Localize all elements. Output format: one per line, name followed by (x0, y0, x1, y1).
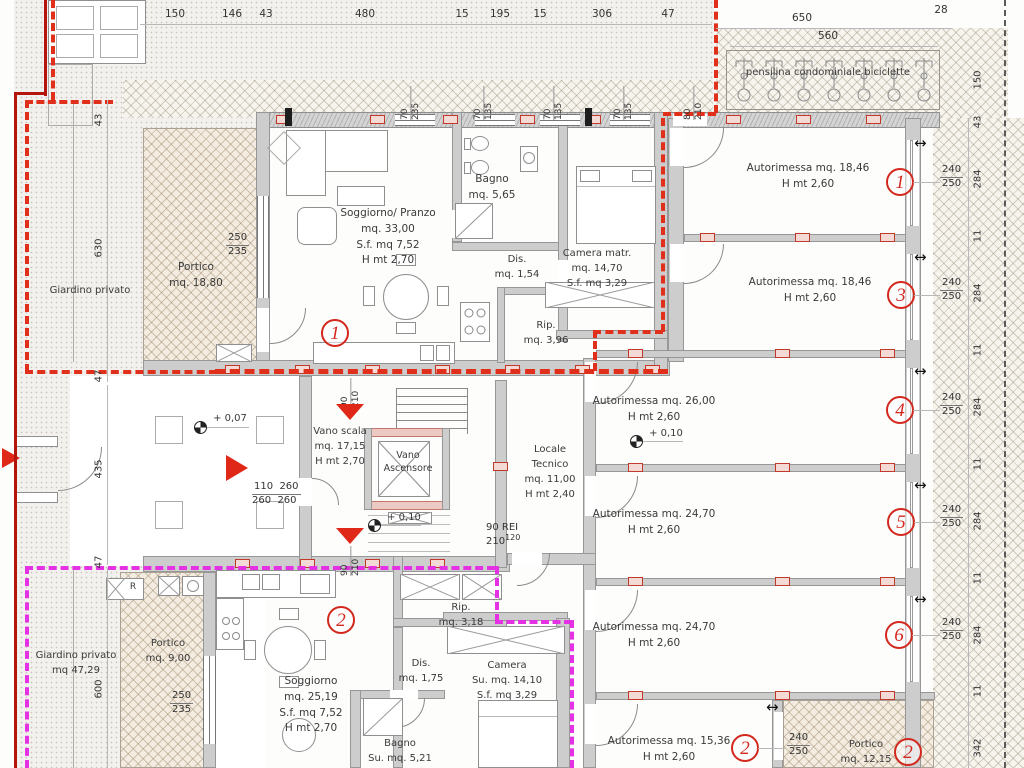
garage4-label: Autorimessa mq. 26,00 (593, 394, 716, 410)
garage-door-2 (774, 712, 783, 760)
garage1-h: H mt 2,60 (747, 177, 870, 193)
door-post (585, 108, 592, 126)
boiler-cross-icon (106, 578, 125, 600)
dim-label: 43 (973, 116, 984, 129)
chair (244, 640, 256, 660)
boiler-label: R (130, 582, 136, 594)
unit2-boundary (495, 566, 499, 622)
gate-top (14, 436, 58, 447)
entrance-arrow-icon (336, 528, 364, 544)
sink-basin (262, 574, 280, 590)
leader-line (913, 410, 940, 411)
dim-label: 47 (661, 8, 674, 22)
portico1-box-cross-icon (216, 344, 252, 362)
dim-label: 150 (165, 8, 185, 22)
level-line (381, 525, 421, 526)
cabinet-cell (56, 6, 94, 30)
door-dim-pair: 80210 (683, 86, 705, 120)
garage1-door-dim: 240250 (940, 164, 963, 190)
boundary-solid (14, 92, 47, 95)
dim-label: 43 (94, 114, 105, 127)
entry-dims: 110 260260 260 (252, 456, 301, 532)
soggiorno2-label: Soggiorno (279, 674, 342, 690)
soggiorno2-sf: S.f. mq 7,52 (279, 706, 342, 722)
vano-scala-label: Vano scala (313, 424, 367, 439)
pillar-mark (775, 463, 790, 472)
dim-label: 560 (818, 30, 838, 44)
garage5-label: Autorimessa mq. 24,70 (593, 507, 716, 523)
dim-label: 28 (934, 4, 947, 18)
garage1-label: Autorimessa mq. 18,46 (747, 161, 870, 177)
garage6-h: H mt 2,60 (593, 636, 716, 652)
pillar-mark (880, 349, 895, 358)
leader-line (912, 635, 940, 636)
dim-label: 650 (792, 12, 812, 26)
portico-garage2-label: Portico (840, 737, 891, 752)
dim-line-650 (716, 28, 952, 29)
rip2-label: Rip. (439, 600, 484, 615)
pillar-mark (880, 463, 895, 472)
window-dim-pair: 70135 (543, 86, 565, 120)
dis1-label: Dis. (495, 252, 540, 267)
bed-line (479, 716, 557, 717)
wardrobe-cross-icon (447, 626, 565, 654)
pillar-mark (628, 691, 643, 700)
unit2-badge: 2 (327, 606, 355, 634)
portico1-label: Portico (169, 260, 223, 276)
door-garage2-side (585, 704, 596, 744)
dim-label: 11 (973, 458, 984, 471)
entrance-arrow-icon (336, 404, 364, 420)
pillar (155, 416, 183, 444)
garage1-badge: 1 (886, 168, 914, 196)
dim-label: 600 (94, 679, 105, 698)
pillow (580, 170, 600, 182)
pillar (155, 501, 183, 529)
pillar-mark (493, 462, 508, 471)
unit1-boundary (25, 100, 113, 104)
dim-label: 284 (973, 283, 984, 302)
dim-label: 11 (973, 344, 984, 357)
wall-rip1-left (497, 287, 505, 363)
pillar-mark (628, 349, 643, 358)
chair (314, 640, 326, 660)
window-apt2-left (203, 656, 216, 744)
soggiorno1-sf: S.f. mq 7,52 (340, 238, 435, 254)
dim-label: 630 (94, 238, 105, 257)
chair (279, 608, 299, 620)
unit2-boundary (570, 620, 574, 768)
cabinet-cell (100, 6, 138, 30)
pillar-mark (370, 115, 385, 124)
dining-table (264, 626, 312, 674)
dim-label: 47 (94, 556, 105, 569)
rip1-area: mq. 3,96 (524, 333, 569, 348)
level-marker-icon (194, 421, 207, 434)
bicycle-icons (730, 52, 934, 108)
door-stair-entry (299, 478, 312, 506)
dryer-drum (187, 580, 199, 592)
camera2-sf: S.f. mq 3,29 (472, 688, 542, 703)
dining-table (383, 274, 429, 320)
stove-burners-icon (218, 612, 244, 646)
wc (471, 136, 489, 151)
pillar-mark (443, 115, 458, 124)
garage2-h: H mt 2,60 (608, 750, 731, 766)
level-marker-icon (630, 435, 643, 448)
sink-basin (242, 574, 260, 590)
door-garage1 (670, 128, 684, 166)
unit1-boundary (25, 370, 217, 374)
dim-line-left (107, 385, 108, 565)
pillar-mark (726, 115, 741, 124)
bagno2-area: Su. mq. 5,21 (368, 751, 432, 766)
leader-line (758, 748, 785, 749)
garage2-badge: 2 (731, 734, 759, 762)
level-marker-icon (368, 519, 381, 532)
bagno1-area: mq. 5,65 (469, 188, 516, 204)
dim-label: 15 (533, 8, 546, 22)
dis1-area: mq. 1,54 (495, 267, 540, 282)
dim-label: 146 (222, 8, 242, 22)
stair-door-dim: 90210 (340, 546, 362, 576)
pillar-mark (796, 115, 811, 124)
ascensore-label2: Ascensore (384, 463, 433, 476)
portico-garage2-badge: 2 (894, 738, 922, 766)
unit2-boundary (495, 620, 572, 624)
garage2-door-dim: 240250 (787, 732, 810, 758)
camera2-label: Camera (472, 658, 542, 673)
window-apt1-left (257, 196, 269, 298)
pillar-mark (628, 577, 643, 586)
garage4-h: H mt 2,60 (593, 410, 716, 426)
garden2-area: mq 47,29 (36, 663, 117, 678)
chair (363, 286, 375, 306)
washer-cross-icon (158, 576, 180, 596)
locale-tecnico-h: H mt 2,40 (524, 487, 575, 502)
level-010-garage: + 0,10 (649, 427, 683, 440)
pillar-mark (880, 233, 895, 242)
chair (437, 286, 449, 306)
rei-door-label: 90 REI 210120 (486, 522, 520, 547)
unit2-boundary (25, 566, 29, 768)
garage3-door-dim: 240250 (940, 277, 963, 303)
double-arrow-icon: ↔ (914, 250, 927, 265)
pillar-mark (520, 115, 535, 124)
window-dim-pair: 70235 (400, 86, 422, 120)
soggiorno1-area: mq. 33,00 (340, 222, 435, 238)
stove-burners-icon (460, 302, 490, 342)
camera1-area: mq. 14,70 (563, 261, 632, 276)
unit1-badge: 1 (321, 319, 349, 347)
chair (396, 322, 416, 334)
sink-basin (420, 345, 434, 361)
wall-bagno1-bottom (452, 242, 568, 251)
dis2-area: mq. 1,75 (399, 671, 444, 686)
dim-line-560 (730, 46, 938, 47)
wc-tank (464, 138, 471, 150)
garage6-door-dim: 240250 (940, 617, 963, 643)
door-apt1-portico (257, 308, 269, 352)
dim-label: 284 (973, 625, 984, 644)
double-arrow-icon: ↔ (914, 136, 927, 151)
unit1-boundary (593, 330, 663, 334)
dim-label: 284 (973, 169, 984, 188)
floor-plan: 150 146 43 480 15 195 15 306 47 650 560 … (0, 0, 1024, 768)
gate-bottom (14, 492, 58, 503)
pillar-mark (775, 349, 790, 358)
leader-line (913, 182, 940, 183)
elevator-wall-top (364, 428, 450, 437)
garage4-badge: 4 (886, 396, 914, 424)
soggiorno1-label: Soggiorno/ Pranzo (340, 206, 435, 222)
garage4-door-dim: 240250 (940, 392, 963, 418)
dim-line-left (107, 100, 108, 382)
camera1-label: Camera matr. (563, 246, 632, 261)
sink-basin (436, 345, 450, 361)
door-post (285, 108, 292, 126)
elevator-wall-right (442, 428, 450, 510)
garden2-label: Giardino privato (36, 648, 117, 663)
dim-label: 47 (94, 370, 105, 383)
garage6-label: Autorimessa mq. 24,70 (593, 620, 716, 636)
portico2-paving (120, 572, 206, 768)
window-dim-pair: 70135 (473, 86, 495, 120)
door-garage3 (670, 244, 684, 282)
soggiorno1-h: H mt 2,70 (340, 253, 435, 269)
elevator-wall-bottom (364, 501, 450, 510)
unit1-boundary (593, 330, 597, 371)
dim-label: 284 (973, 397, 984, 416)
sidewalk-right (933, 118, 1024, 768)
pillar-mark (880, 691, 895, 700)
cabinet-cell (56, 34, 94, 58)
pillar-mark (775, 577, 790, 586)
wall-bagno2-left (350, 690, 361, 768)
locale-tecnico-label: Locale (524, 442, 575, 457)
garage5-h: H mt 2,60 (593, 523, 716, 539)
dim-label: 150 (973, 70, 984, 89)
garage3-label: Autorimessa mq. 18,46 (749, 275, 872, 291)
pillow (632, 170, 652, 182)
pillar-mark (880, 577, 895, 586)
soggiorno2-area: mq. 25,19 (279, 690, 342, 706)
wardrobe-cross-icon (400, 574, 460, 600)
garden1-label: Giardino privato (50, 284, 131, 297)
leader-line (914, 522, 940, 523)
property-line (1004, 0, 1006, 768)
garage5-badge: 5 (887, 508, 915, 536)
dim-label: 43 (259, 8, 272, 22)
rip2-area: mq. 3,18 (439, 615, 484, 630)
unit1-boundary (661, 118, 665, 332)
unit1-boundary (25, 100, 29, 372)
wall-stair-left (299, 376, 312, 568)
double-bed (478, 700, 558, 768)
dim-line-right (968, 118, 969, 768)
portico1-area: mq. 18,80 (169, 276, 223, 292)
garage5-door-dim: 240250 (940, 504, 963, 530)
pillar (256, 416, 284, 444)
dim-label: 342 (973, 738, 984, 757)
entrance-arrow-icon (2, 448, 20, 468)
unit1-boundary (215, 369, 668, 374)
portico2-label: Portico (146, 636, 191, 651)
unit1-boundary (714, 0, 718, 113)
dim-label: 480 (355, 8, 375, 22)
dim-line-top (140, 24, 712, 25)
bagno1-label: Bagno (469, 172, 516, 188)
double-arrow-icon: ↔ (914, 478, 927, 493)
camera2-area: Su. mq. 14,10 (472, 673, 542, 688)
boundary-solid (44, 0, 47, 96)
shower-diagonal-icon (363, 698, 403, 736)
ascensore-label: Vano (384, 450, 433, 463)
unit1-boundary (51, 0, 55, 100)
dim-label: 11 (973, 230, 984, 243)
dim-label: 284 (973, 511, 984, 530)
fridge (300, 574, 330, 594)
garage3-h: H mt 2,60 (749, 291, 872, 307)
pillar-mark (700, 233, 715, 242)
camera1-sf: S.f. mq 3,29 (563, 276, 632, 291)
pillar-mark (866, 115, 881, 124)
double-arrow-icon: ↔ (914, 592, 927, 607)
level-010: + 0,10 (387, 511, 421, 524)
entrance-arrow-icon (226, 455, 248, 481)
level-line (643, 441, 683, 442)
cabinet-cell (100, 34, 138, 58)
window-dim-250-235: 250235 (226, 232, 249, 258)
pillar-mark (628, 463, 643, 472)
dis2-label: Dis. (399, 656, 444, 671)
pillar-mark (795, 233, 810, 242)
garage2-label: Autorimessa mq. 15,36 (608, 734, 731, 750)
rip1-label: Rip. (524, 318, 569, 333)
garage3-badge: 3 (887, 281, 915, 309)
armchair (297, 207, 337, 245)
garage6-badge: 6 (885, 621, 913, 649)
bagno2-label: Bagno (368, 736, 432, 751)
vano-scala-h: H mt 2,70 (313, 454, 367, 469)
shower-diagonal-icon (455, 203, 493, 239)
locale-tecnico-label2: Tecnico (524, 457, 575, 472)
pensilina-label: pensilina condominiale biciclette (746, 66, 910, 79)
window-dim-pair: 70135 (613, 86, 635, 120)
tv-bench (337, 186, 385, 206)
level-007: + 0,07 (213, 412, 247, 425)
locale-tecnico-area: mq. 11,00 (524, 472, 575, 487)
leader-line (914, 295, 940, 296)
portico2-area: mq. 9,00 (146, 651, 191, 666)
soggiorno2-h: H mt 2,70 (279, 721, 342, 737)
dim-label: 435 (94, 459, 105, 478)
dim-label: 306 (592, 8, 612, 22)
boundary-solid (14, 92, 17, 768)
level-line (207, 427, 249, 428)
dim-label: 195 (490, 8, 510, 22)
garden1-fence (73, 100, 74, 362)
bed-line (577, 186, 655, 187)
dim-label: 15 (455, 8, 468, 22)
double-arrow-icon: ↔ (914, 364, 927, 379)
portico-garage2-area: mq. 12,15 (840, 752, 891, 767)
dim-label: 11 (973, 685, 984, 698)
double-arrow-icon: ↔ (766, 700, 779, 715)
washbasin-bowl (523, 152, 535, 164)
window-dim-250-235: 250235 (170, 690, 193, 716)
dim-label: 11 (973, 572, 984, 585)
vano-scala-area: mq. 17,15 (313, 439, 367, 454)
